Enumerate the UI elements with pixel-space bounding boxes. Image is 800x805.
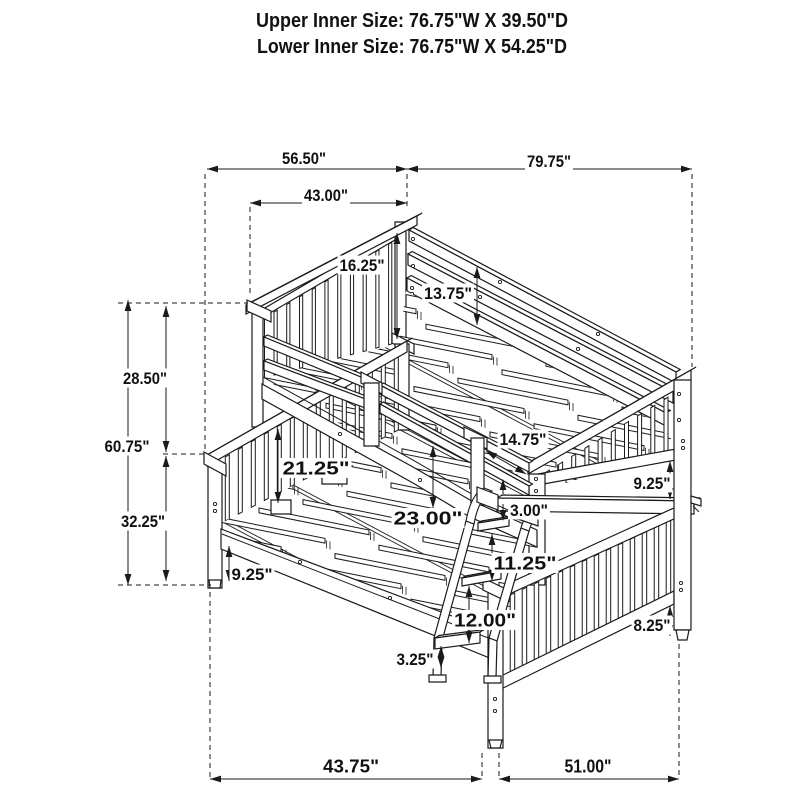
- svg-text:13.75": 13.75": [424, 284, 472, 303]
- svg-text:51.00": 51.00": [565, 757, 612, 777]
- svg-text:3.25": 3.25": [397, 650, 434, 669]
- svg-text:Lower Inner Size: 76.75"W X 54: Lower Inner Size: 76.75"W X 54.25"D: [257, 36, 567, 58]
- svg-text:43.00": 43.00": [304, 186, 348, 205]
- svg-text:43.75": 43.75": [323, 757, 379, 777]
- svg-text:14.75": 14.75": [500, 430, 547, 449]
- svg-text:16.25": 16.25": [340, 256, 385, 275]
- svg-text:32.25": 32.25": [121, 512, 165, 531]
- svg-text:Upper Inner Size: 76.75"W X 39: Upper Inner Size: 76.75"W X 39.50"D: [256, 10, 568, 32]
- svg-text:8.25": 8.25": [634, 616, 671, 635]
- svg-text:28.50": 28.50": [123, 369, 167, 388]
- svg-text:79.75": 79.75": [527, 152, 571, 171]
- svg-text:12.00": 12.00": [454, 611, 516, 631]
- svg-text:21.25": 21.25": [283, 459, 350, 479]
- svg-text:9.25": 9.25": [634, 474, 671, 493]
- svg-text:23.00": 23.00": [394, 509, 463, 529]
- svg-text:3.00": 3.00": [510, 501, 548, 520]
- svg-text:11.25": 11.25": [494, 554, 557, 574]
- svg-text:56.50": 56.50": [282, 149, 326, 168]
- svg-text:9.25": 9.25": [232, 565, 273, 584]
- svg-text:60.75": 60.75": [105, 437, 150, 456]
